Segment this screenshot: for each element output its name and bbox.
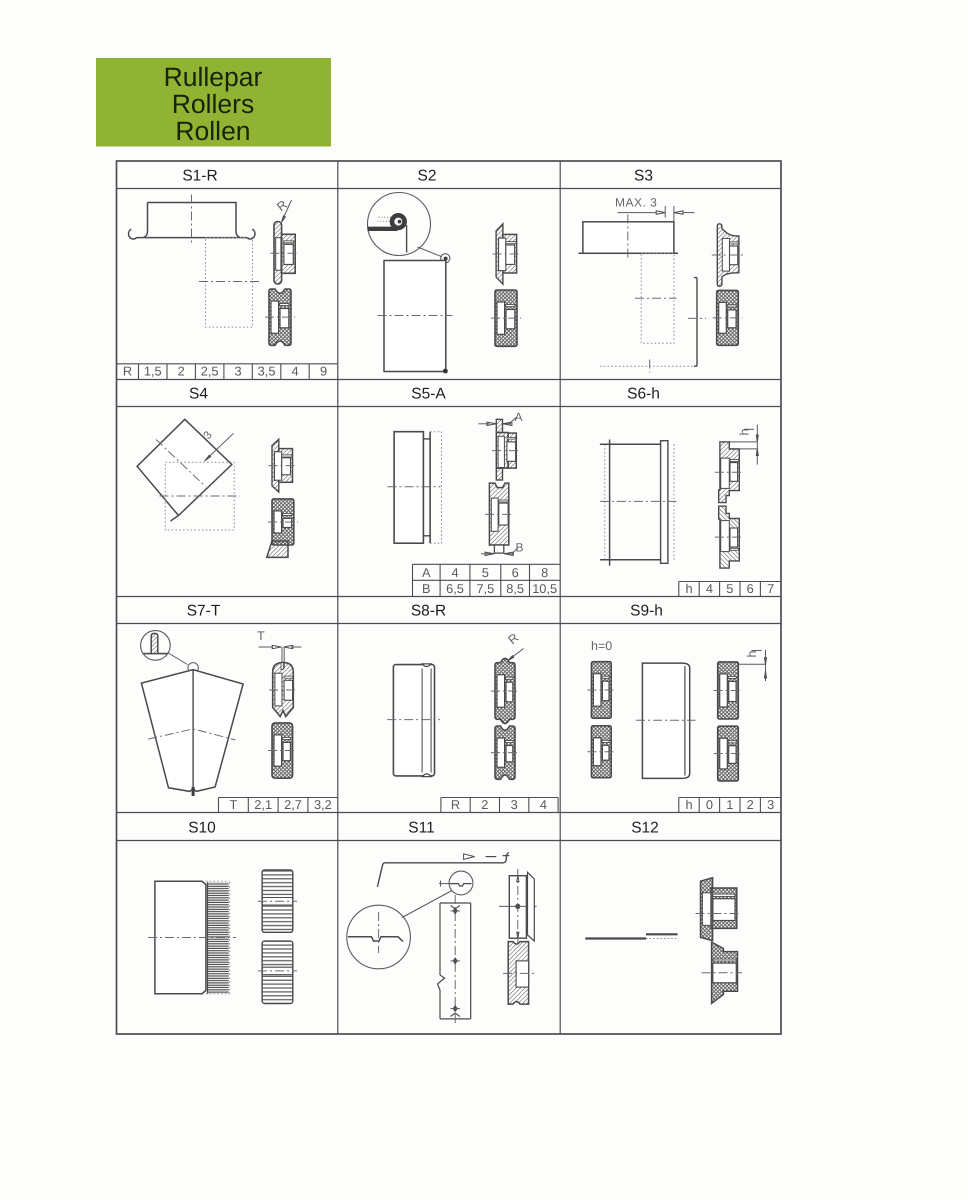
svg-text:Rollers: Rollers: [172, 89, 254, 119]
svg-text:3,2: 3,2: [314, 797, 332, 812]
svg-text:h: h: [745, 650, 759, 657]
svg-text:S4: S4: [189, 386, 208, 403]
svg-text:R: R: [451, 797, 460, 812]
svg-text:8: 8: [541, 565, 548, 580]
svg-text:6: 6: [747, 581, 754, 596]
svg-text:0: 0: [706, 797, 713, 812]
svg-text:S1-R: S1-R: [182, 168, 217, 185]
svg-text:h: h: [685, 797, 692, 812]
svg-text:2: 2: [481, 797, 488, 812]
svg-text:5: 5: [726, 581, 733, 596]
svg-text:9: 9: [320, 364, 327, 379]
svg-text:S12: S12: [631, 820, 659, 837]
svg-text:2,7: 2,7: [284, 797, 302, 812]
svg-text:S5-A: S5-A: [411, 386, 446, 403]
svg-text:MAX. 3: MAX. 3: [615, 196, 657, 210]
svg-text:10,5: 10,5: [532, 581, 557, 596]
svg-text:R: R: [123, 364, 132, 379]
svg-text:4: 4: [706, 581, 713, 596]
svg-text:3: 3: [767, 797, 774, 812]
svg-text:4: 4: [291, 364, 298, 379]
svg-text:7: 7: [767, 581, 774, 596]
svg-text:2,5: 2,5: [201, 364, 219, 379]
svg-text:S10: S10: [188, 820, 216, 837]
svg-text:2: 2: [178, 364, 185, 379]
svg-text:3,5: 3,5: [258, 364, 276, 379]
svg-text:h=0: h=0: [591, 639, 612, 653]
svg-text:1,5: 1,5: [144, 364, 162, 379]
svg-text:S6-h: S6-h: [627, 386, 660, 403]
svg-text:B: B: [515, 541, 523, 555]
svg-text:B: B: [422, 581, 431, 596]
svg-text:Rullepar: Rullepar: [164, 62, 263, 92]
svg-text:T: T: [229, 797, 237, 812]
svg-text:S11: S11: [408, 820, 434, 837]
svg-text:A: A: [422, 565, 431, 580]
svg-text:S8-R: S8-R: [411, 603, 446, 620]
svg-text:2: 2: [747, 797, 754, 812]
svg-text:S2: S2: [418, 168, 437, 185]
svg-text:8,5: 8,5: [506, 581, 524, 596]
svg-text:7,5: 7,5: [476, 581, 494, 596]
svg-text:3: 3: [511, 797, 518, 812]
svg-text:T: T: [257, 629, 265, 643]
svg-text:5: 5: [482, 565, 489, 580]
svg-text:h: h: [685, 581, 692, 596]
svg-text:S3: S3: [634, 168, 653, 185]
svg-text:4: 4: [451, 565, 458, 580]
svg-text:6: 6: [512, 565, 519, 580]
svg-text:2,1: 2,1: [254, 797, 272, 812]
svg-text:Rollen: Rollen: [175, 116, 250, 146]
svg-text:A: A: [514, 410, 522, 424]
svg-text:3: 3: [235, 364, 242, 379]
svg-text:1: 1: [726, 797, 733, 812]
svg-text:4: 4: [540, 797, 547, 812]
svg-text:S7-T: S7-T: [187, 603, 221, 620]
svg-text:S9-h: S9-h: [630, 603, 663, 620]
svg-text:6,5: 6,5: [446, 581, 464, 596]
